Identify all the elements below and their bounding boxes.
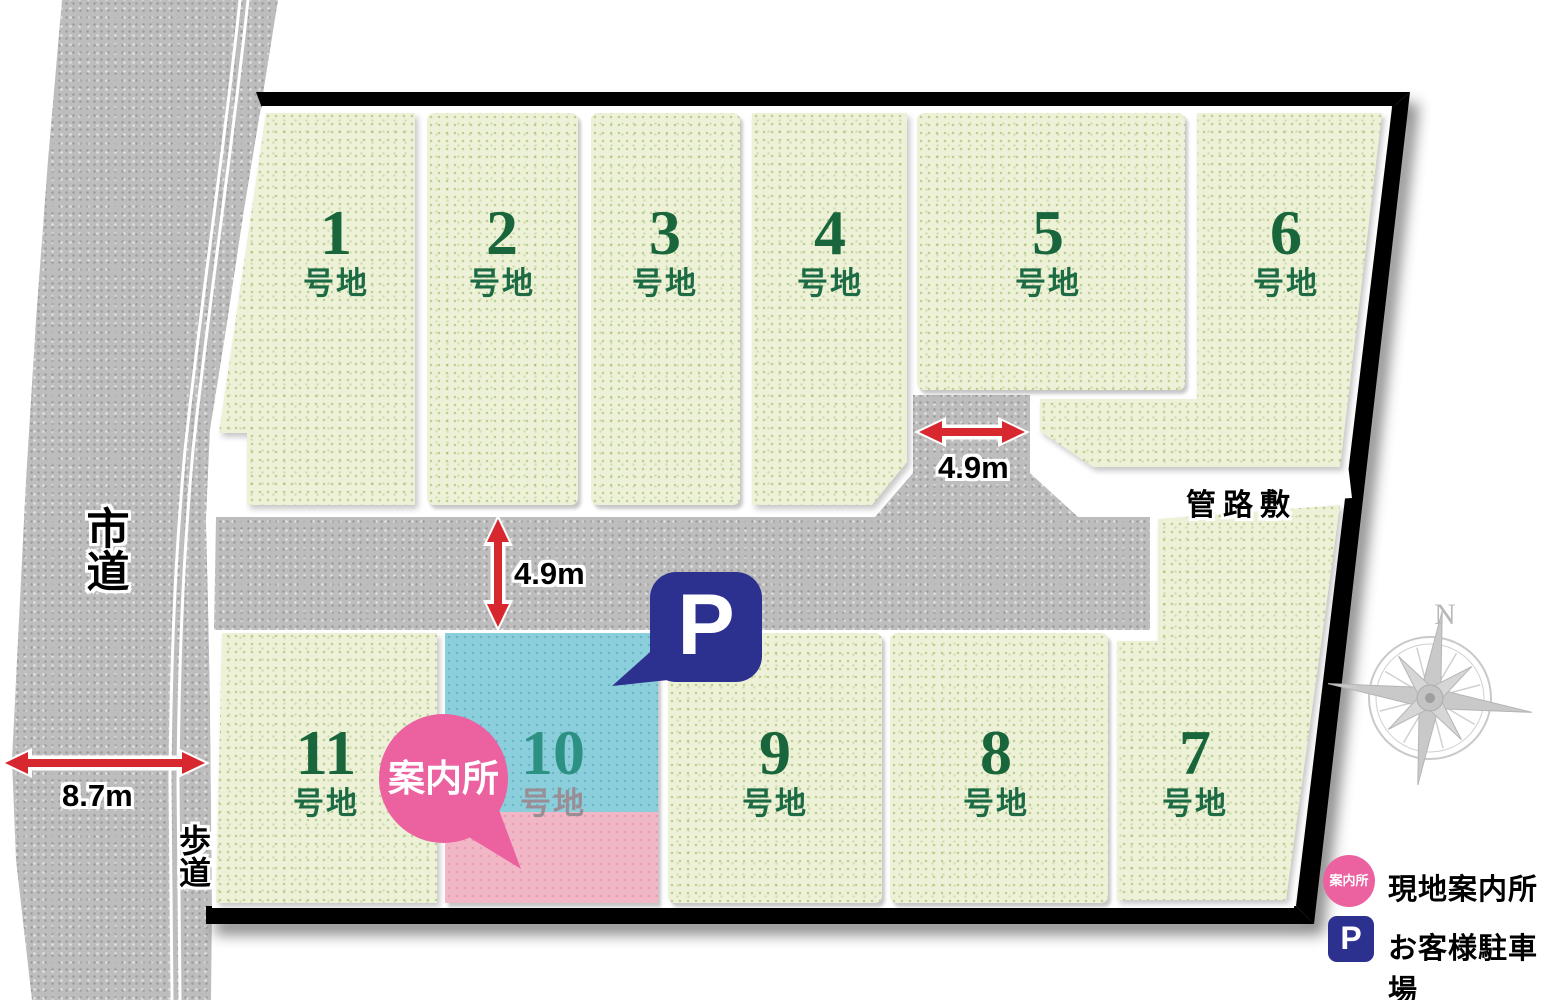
city-road-label: 市道 [72, 506, 134, 592]
compass-icon: N [1316, 597, 1544, 800]
legend-parking-label: お客様駐車場 [1388, 925, 1560, 1000]
info-office-marker: 案内所 [379, 714, 508, 843]
legend-info-office-label: 現地案内所 [1388, 866, 1538, 908]
customer-parking-marker: P [650, 572, 762, 682]
lot-8 [890, 633, 1108, 903]
dim-city-road-width: 8.7m [62, 778, 133, 814]
lot-3 [591, 113, 740, 505]
dim-branch-road-width: 4.9m [938, 450, 1009, 486]
legend-info-office-icon: 案内所 [1323, 855, 1375, 907]
svg-text:N: N [1434, 598, 1456, 631]
sidewalk-label: 歩道 [170, 824, 216, 888]
dim-main-road-width: 4.9m [514, 556, 585, 592]
lot-5 [917, 113, 1185, 390]
legend-parking-icon: P [1328, 916, 1374, 962]
lot-map: 1号地 2号地 3号地 4号地 5号地 6号地 7号地 8号地 9号地 10号地… [0, 0, 1560, 1000]
pipeline-label: 管路敷 [1186, 480, 1297, 524]
parking-p-icon: P [677, 577, 734, 673]
lot-2 [427, 113, 578, 505]
